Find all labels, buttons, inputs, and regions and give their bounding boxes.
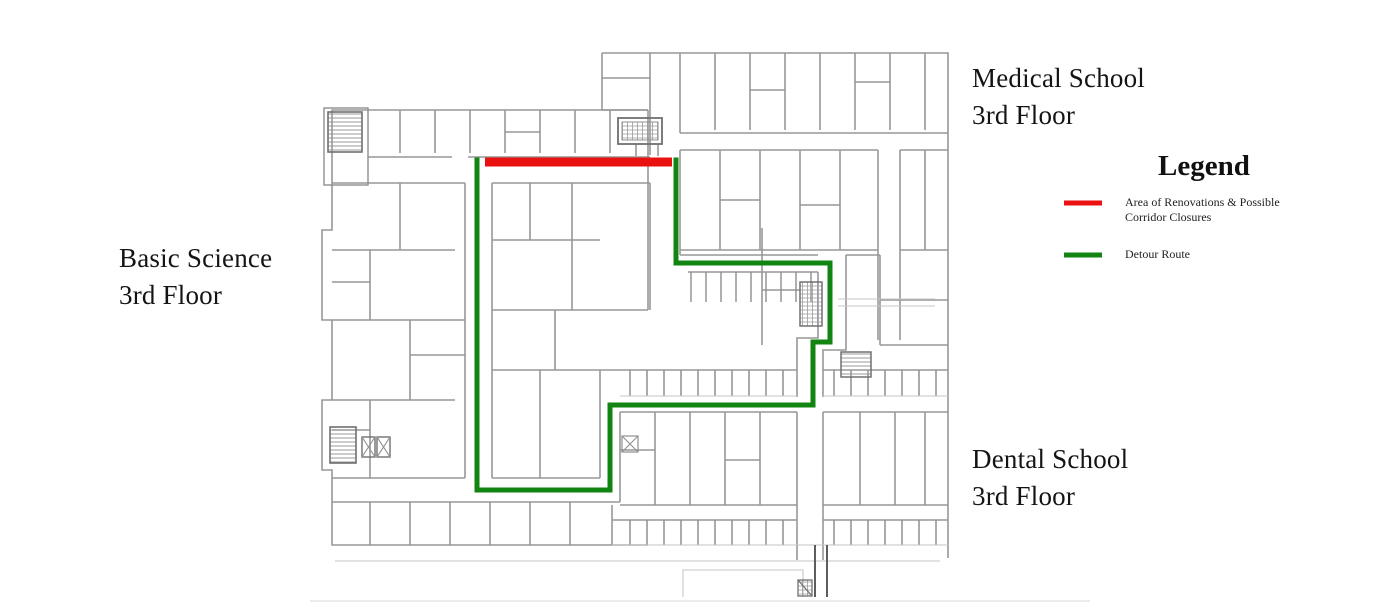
floor-plan-page: Basic Science 3rd Floor Medical School 3… xyxy=(0,0,1382,605)
stairwell-middle-icon xyxy=(841,352,871,377)
dental-school-label-line2: 3rd Floor xyxy=(972,478,1128,515)
detour-line-swatch xyxy=(1063,251,1103,259)
medical-school-label-line1: Medical School xyxy=(972,60,1145,97)
renovations-legend-text-line1: Area of Renovations & Possible xyxy=(1125,195,1280,210)
center-corridor-walls xyxy=(602,53,680,310)
basic-science-label-line1: Basic Science xyxy=(119,240,272,277)
basic-science-label: Basic Science 3rd Floor xyxy=(119,240,272,314)
legend-title: Legend xyxy=(1040,150,1350,183)
legend-item-renovations: Area of Renovations & Possible Corridor … xyxy=(1040,195,1350,224)
renovations-legend-text-line2: Corridor Closures xyxy=(1125,210,1280,225)
dental-school-label: Dental School 3rd Floor xyxy=(972,441,1128,515)
dental-school-label-line1: Dental School xyxy=(972,441,1128,478)
stairwell-top-left-icon xyxy=(328,112,362,152)
legend-item-detour: Detour Route xyxy=(1040,247,1350,262)
small-room-comb-rows xyxy=(615,272,948,545)
elevator-shaft-middle-icon xyxy=(800,282,822,326)
stairwell-bottom-left-icon xyxy=(330,427,356,463)
detour-legend-text: Detour Route xyxy=(1125,247,1190,262)
medical-school-label-line2: 3rd Floor xyxy=(972,97,1145,134)
detour-legend-text-line1: Detour Route xyxy=(1125,247,1190,262)
medical-school-label: Medical School 3rd Floor xyxy=(972,60,1145,134)
basic-science-label-line2: 3rd Floor xyxy=(119,277,272,314)
renovations-line-swatch xyxy=(1063,199,1103,207)
legend: Legend Area of Renovations & Possible Co… xyxy=(1040,150,1350,262)
left-wing-outline xyxy=(322,110,648,545)
renovations-legend-text: Area of Renovations & Possible Corridor … xyxy=(1125,195,1280,224)
